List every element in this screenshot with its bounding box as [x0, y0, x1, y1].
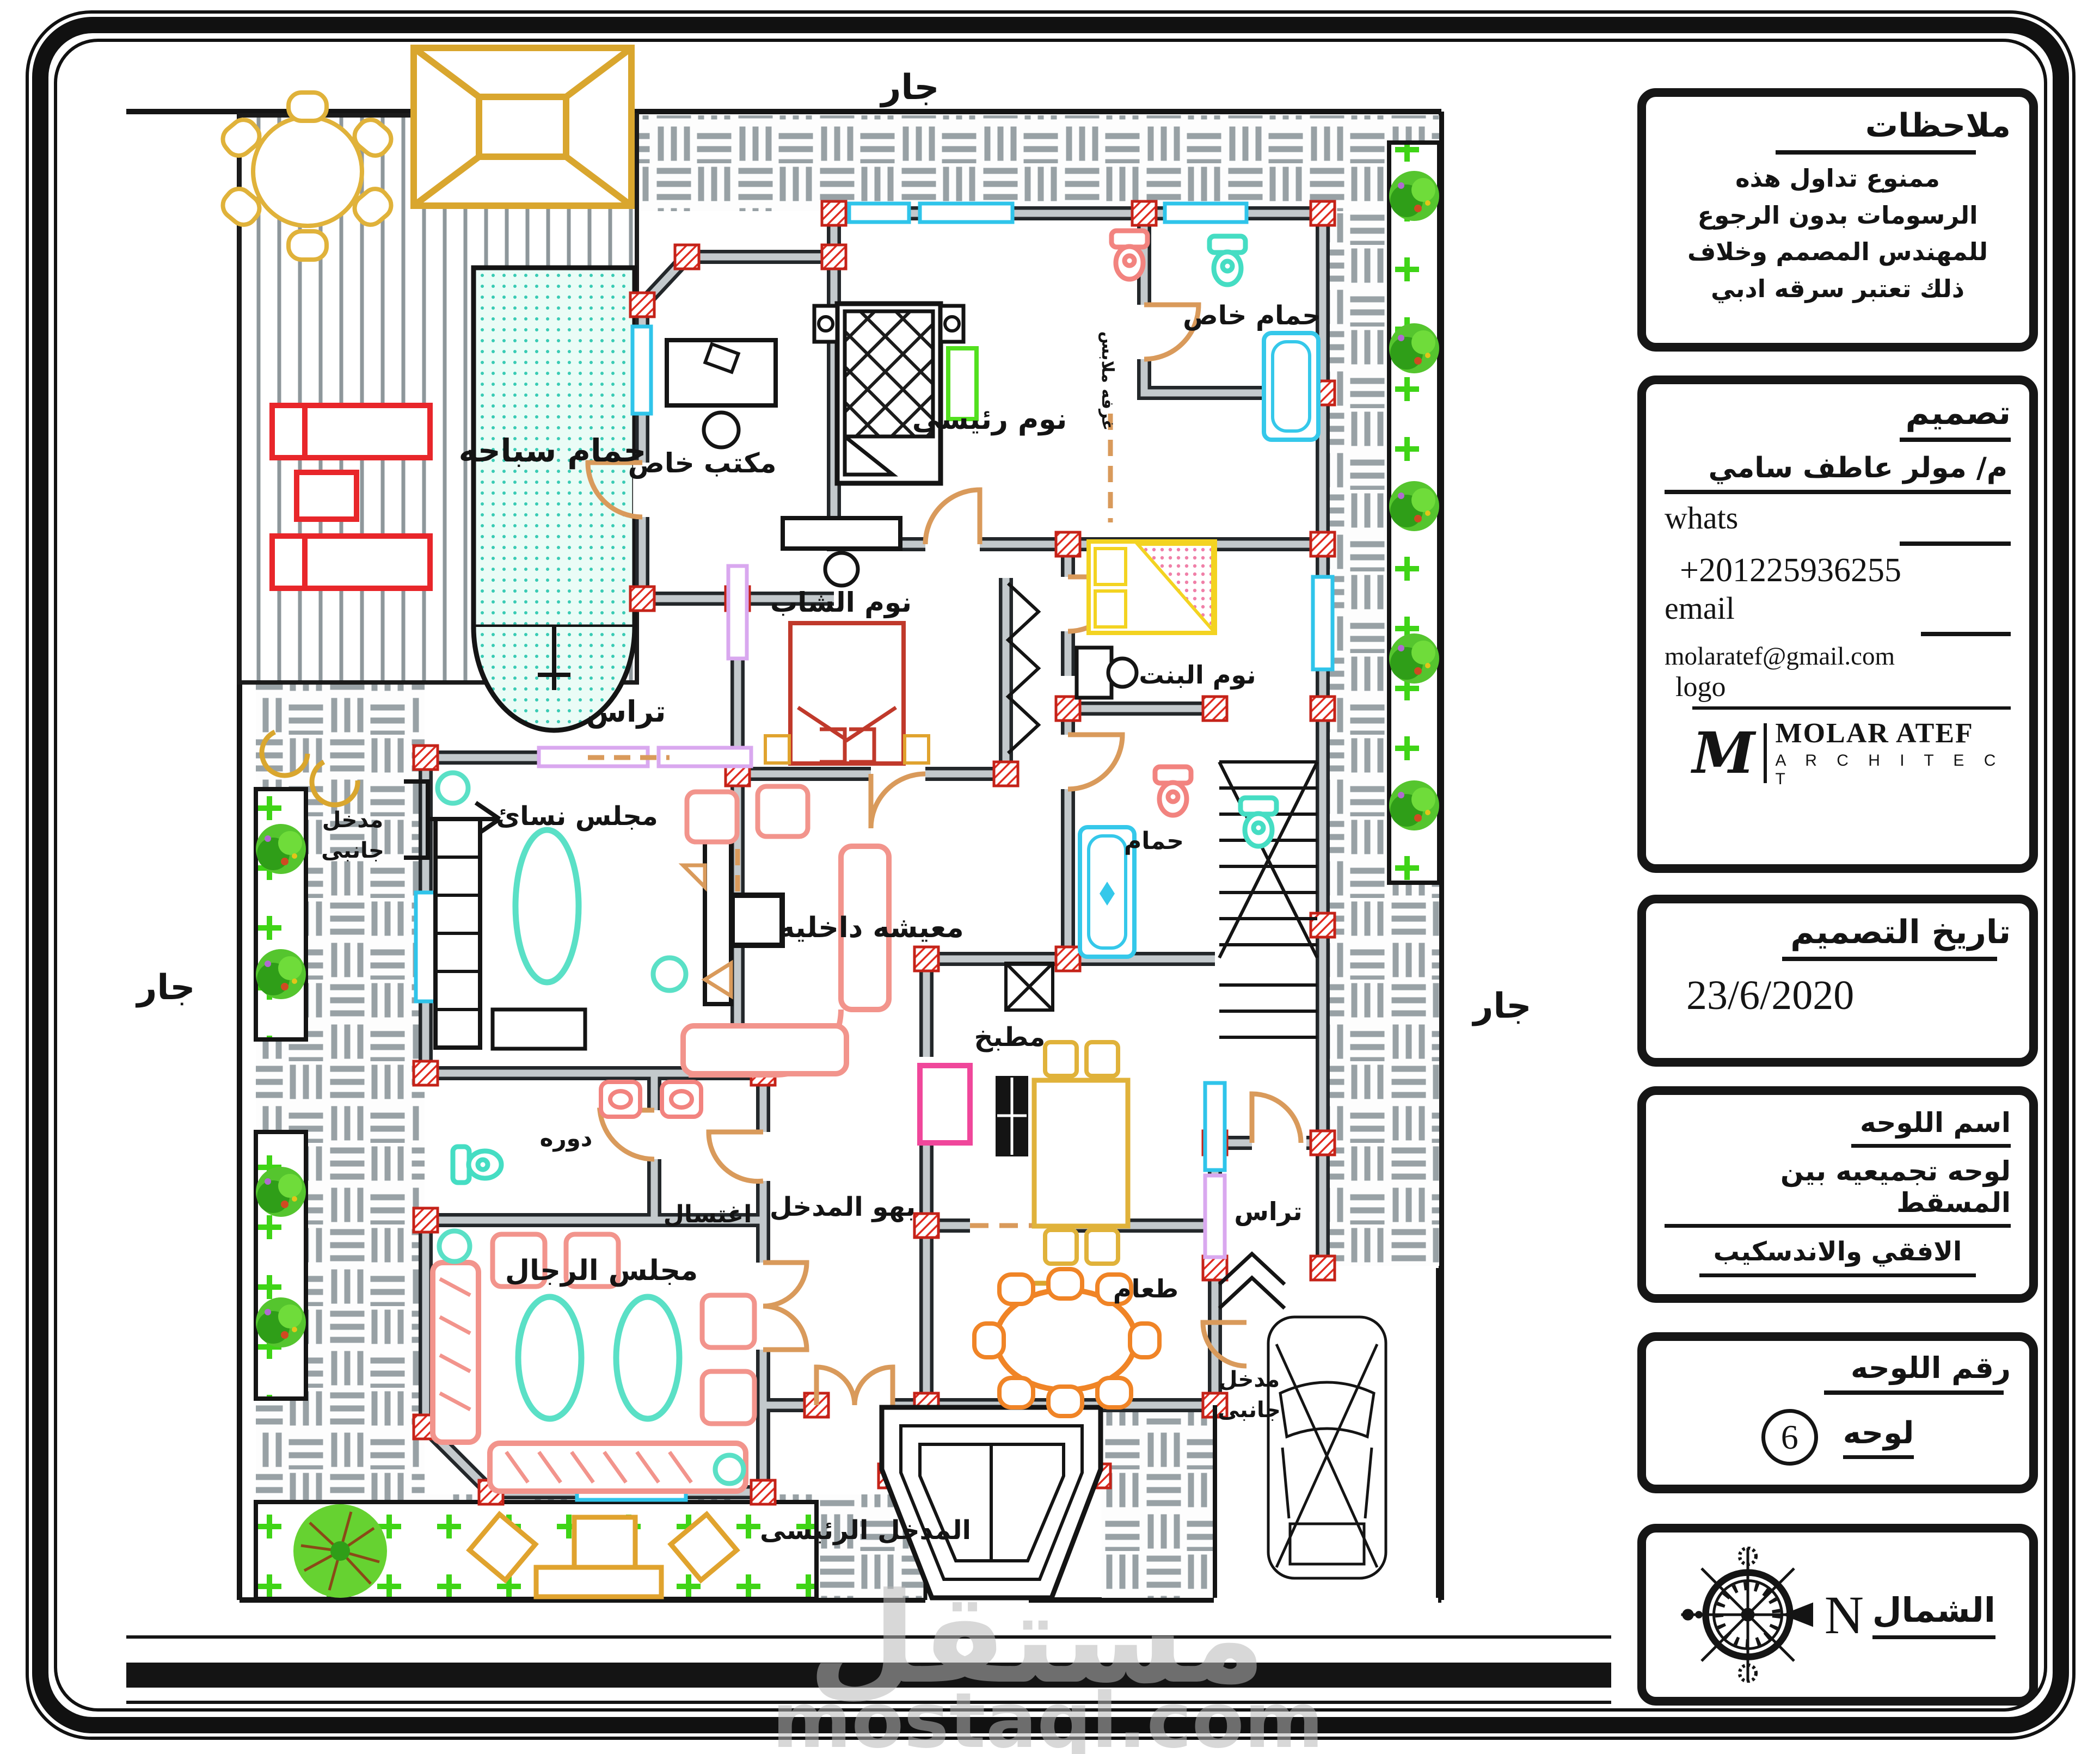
watermark: مستقل mostaql.com [772, 1566, 1323, 1754]
email-value: molaratef@gmail.com [1665, 642, 2011, 671]
drawing-sheet: { "site": { "neighbor_top": "جار", "neig… [0, 0, 2100, 1754]
sheet-number-title: رقم اللوحه [1665, 1351, 2011, 1385]
notes-box: ملاحظات ممنوع تداول هذه الرسومات بدون ال… [1637, 88, 2038, 352]
side-entrance-right [1219, 1254, 1285, 1308]
sheet-number-box: رقم اللوحه لوحه 6 [1637, 1332, 2038, 1493]
date-value: 23/6/2020 [1665, 967, 2011, 1019]
label-pool: حمام سباحه [459, 432, 647, 469]
label-side-entrance-left-2: جانبى [321, 838, 384, 863]
label-bathroom: حمام [1124, 827, 1184, 855]
master-bed [814, 304, 977, 483]
car [1268, 1317, 1386, 1578]
garden-tree [293, 1504, 387, 1598]
sheet-name-title: اسم اللوحه [1851, 1107, 2011, 1148]
sheet-number-label: لوحه [1843, 1415, 1914, 1459]
design-box: تصميم م/ مولر عاطف سامي whats +201225936… [1637, 376, 2038, 873]
boys-bed [765, 518, 1039, 764]
label-office: مكتب خاص [628, 447, 777, 479]
logo-label: logo [1665, 671, 2011, 703]
divider [1900, 438, 2011, 442]
whats-label: whats [1665, 500, 2011, 536]
notes-line-2: الرسومات بدون الرجوع [1665, 197, 2011, 234]
label-girls-bedroom: نوم البنت [1139, 660, 1256, 690]
label-dressing-room: غرفه ملابس [1098, 331, 1117, 430]
date-box: تاريخ التصميم 23/6/2020 [1637, 895, 2038, 1067]
sheet-name-line-2: الافقي والاندسكيب [1699, 1236, 1976, 1277]
deck-canopy [414, 48, 631, 206]
whats-number: +201225936255 [1665, 551, 2011, 590]
label-men-majlis: مجلس الرجال [505, 1254, 698, 1287]
label-master-bedroom: نوم رئيسى [912, 403, 1067, 436]
label-terrace: تراس [586, 694, 666, 729]
design-title: تصميم [1665, 394, 2011, 432]
sheet-name-line-1: لوحه تجميعيه بين المسقط [1665, 1155, 2011, 1228]
label-boys-bedroom: نوم الشاب [770, 587, 912, 619]
divider [1900, 541, 2011, 546]
compass-rose-icon [1680, 1547, 1816, 1683]
email-label: email [1665, 590, 2011, 626]
logo-monogram-icon: M [1692, 728, 1755, 779]
label-side-entrance-left-1: مدخل [322, 808, 383, 833]
garage [1215, 1268, 1438, 1598]
date-title: تاريخ التصميم [1665, 913, 2011, 951]
notes-line-4: ذلك تعتبر سرقه ادبي [1665, 270, 2011, 307]
notes-title: ملاحظات [1665, 107, 2011, 145]
label-kitchen: مطبخ [974, 1022, 1046, 1053]
label-neighbor-right: جار [1472, 986, 1532, 1026]
label-washing: اغتسال [664, 1201, 752, 1228]
label-neighbor-top: جار [880, 67, 940, 108]
label-inner-living: معيشه داخليه [778, 912, 963, 944]
north-letter: N [1825, 1584, 1864, 1646]
label-women-majlis: مجلس نسائ [496, 801, 658, 832]
logo-divider [1764, 723, 1766, 783]
notes-line-1: ممنوع تداول هذه [1665, 160, 2011, 197]
label-dining: طعام [1113, 1274, 1178, 1303]
label-main-entrance: المدخل الرئيسى [760, 1515, 971, 1546]
divider [1776, 150, 1976, 155]
swimming-pool [474, 268, 635, 730]
north-box: N الشمال [1637, 1524, 2038, 1706]
divider [1921, 632, 2011, 636]
sheet-number-value: 6 [1761, 1409, 1818, 1466]
logo-name: MOLAR ATEF [1776, 717, 2011, 749]
divider [1782, 957, 1997, 961]
divider [1824, 1390, 2004, 1395]
label-private-bath: حمام خاص [1183, 300, 1321, 331]
label-terrace-right: تراس [1234, 1197, 1302, 1226]
label-entrance-hall: بهو المدخل [770, 1192, 916, 1222]
sheet-name-box: اسم اللوحه لوحه تجميعيه بين المسقط الافق… [1637, 1086, 2038, 1303]
watermark-latin: mostaql.com [772, 1677, 1323, 1754]
divider [1665, 490, 2011, 494]
north-label: الشمال [1872, 1590, 1995, 1639]
label-wc: دوره [540, 1125, 593, 1152]
label-side-entrance-right-1: مدخل [1219, 1367, 1280, 1392]
designer-name: م/ مولر عاطف سامي [1665, 447, 2011, 484]
label-neighbor-left: جار [136, 968, 195, 1008]
notes-line-3: للمهندس المصمم وخلاف [1665, 233, 2011, 270]
logo-subtitle: A R C H I T E C T [1776, 752, 2011, 789]
office-desk [667, 340, 776, 447]
label-side-entrance-right-2: جانبى [1218, 1398, 1281, 1423]
logo: M MOLAR ATEF A R C H I T E C T [1692, 706, 2011, 789]
